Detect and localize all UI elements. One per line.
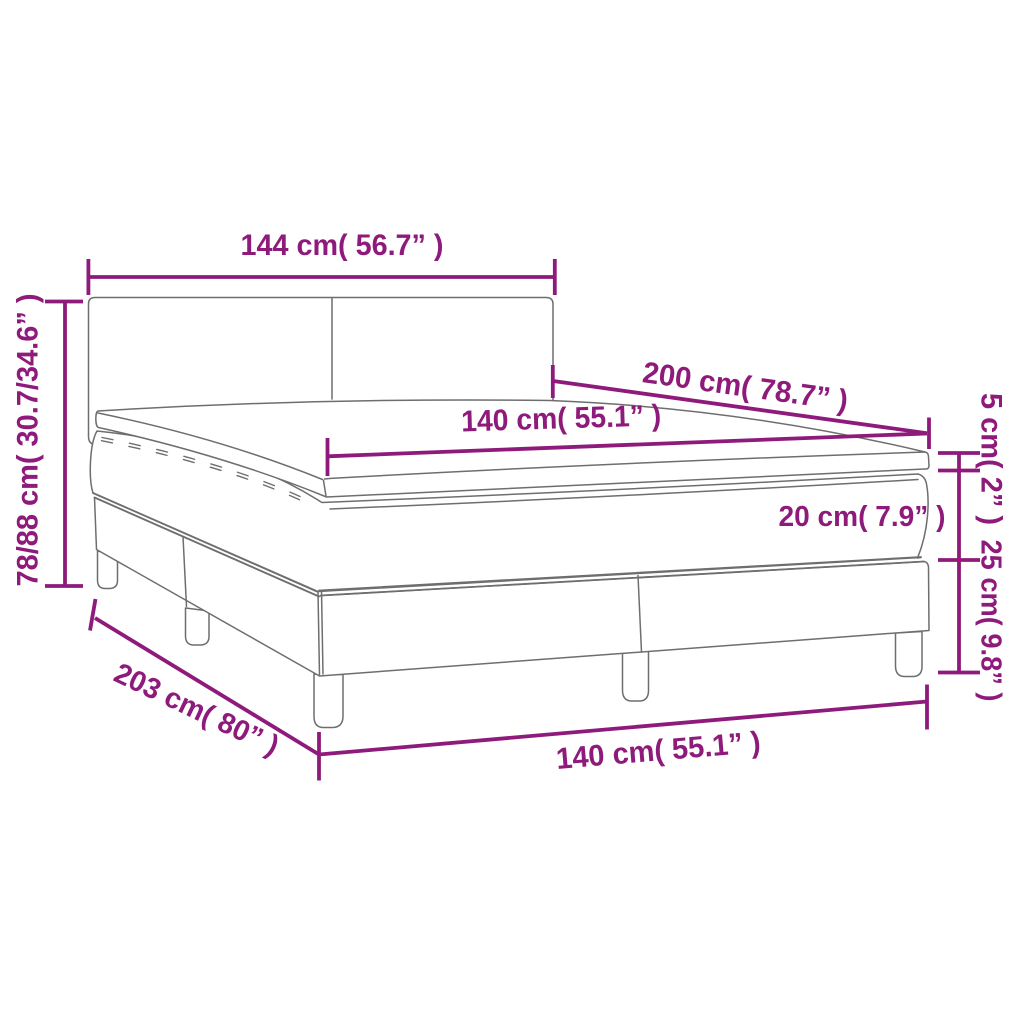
- svg-text:20 cm( 7.9” ): 20 cm( 7.9” ): [779, 501, 946, 533]
- svg-text:78/88 cm( 30.7/34.6” ): 78/88 cm( 30.7/34.6” ): [12, 294, 45, 587]
- svg-text:144 cm( 56.7” ): 144 cm( 56.7” ): [241, 229, 444, 262]
- svg-text:140 cm( 55.1” ): 140 cm( 55.1” ): [461, 399, 662, 438]
- svg-text:25 cm( 9.8” ): 25 cm( 9.8” ): [975, 540, 1007, 702]
- svg-text:5 cm( 2” ): 5 cm( 2” ): [975, 393, 1008, 525]
